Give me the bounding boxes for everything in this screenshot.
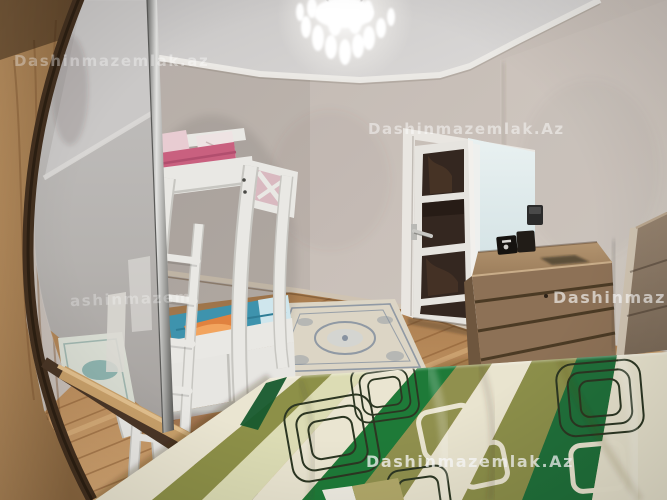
bedroom-photo: Dashinmazemlak.az Dashinmazemlak.Az ashi… <box>0 0 667 500</box>
scene-svg <box>0 0 667 500</box>
light-switch[interactable] <box>527 205 543 225</box>
